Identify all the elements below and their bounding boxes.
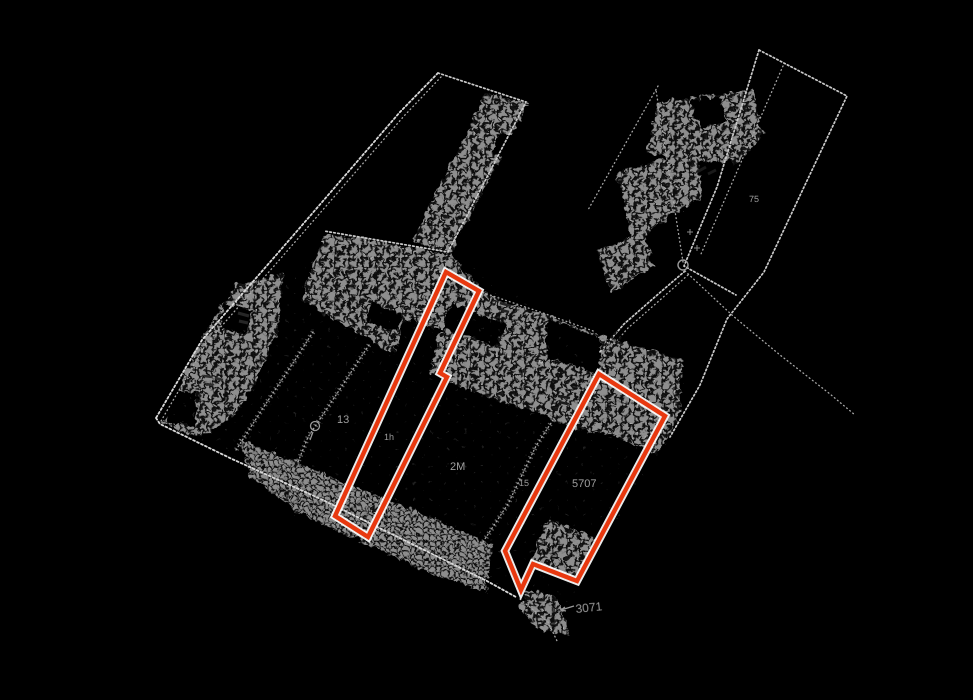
svg-text:75: 75 — [749, 194, 759, 204]
svg-text:2M: 2M — [450, 461, 465, 473]
svg-text:15: 15 — [519, 478, 529, 488]
svg-text:13: 13 — [337, 414, 349, 426]
svg-text:3071: 3071 — [575, 599, 603, 616]
svg-text:5707: 5707 — [572, 478, 596, 490]
svg-text:1h: 1h — [384, 432, 394, 442]
